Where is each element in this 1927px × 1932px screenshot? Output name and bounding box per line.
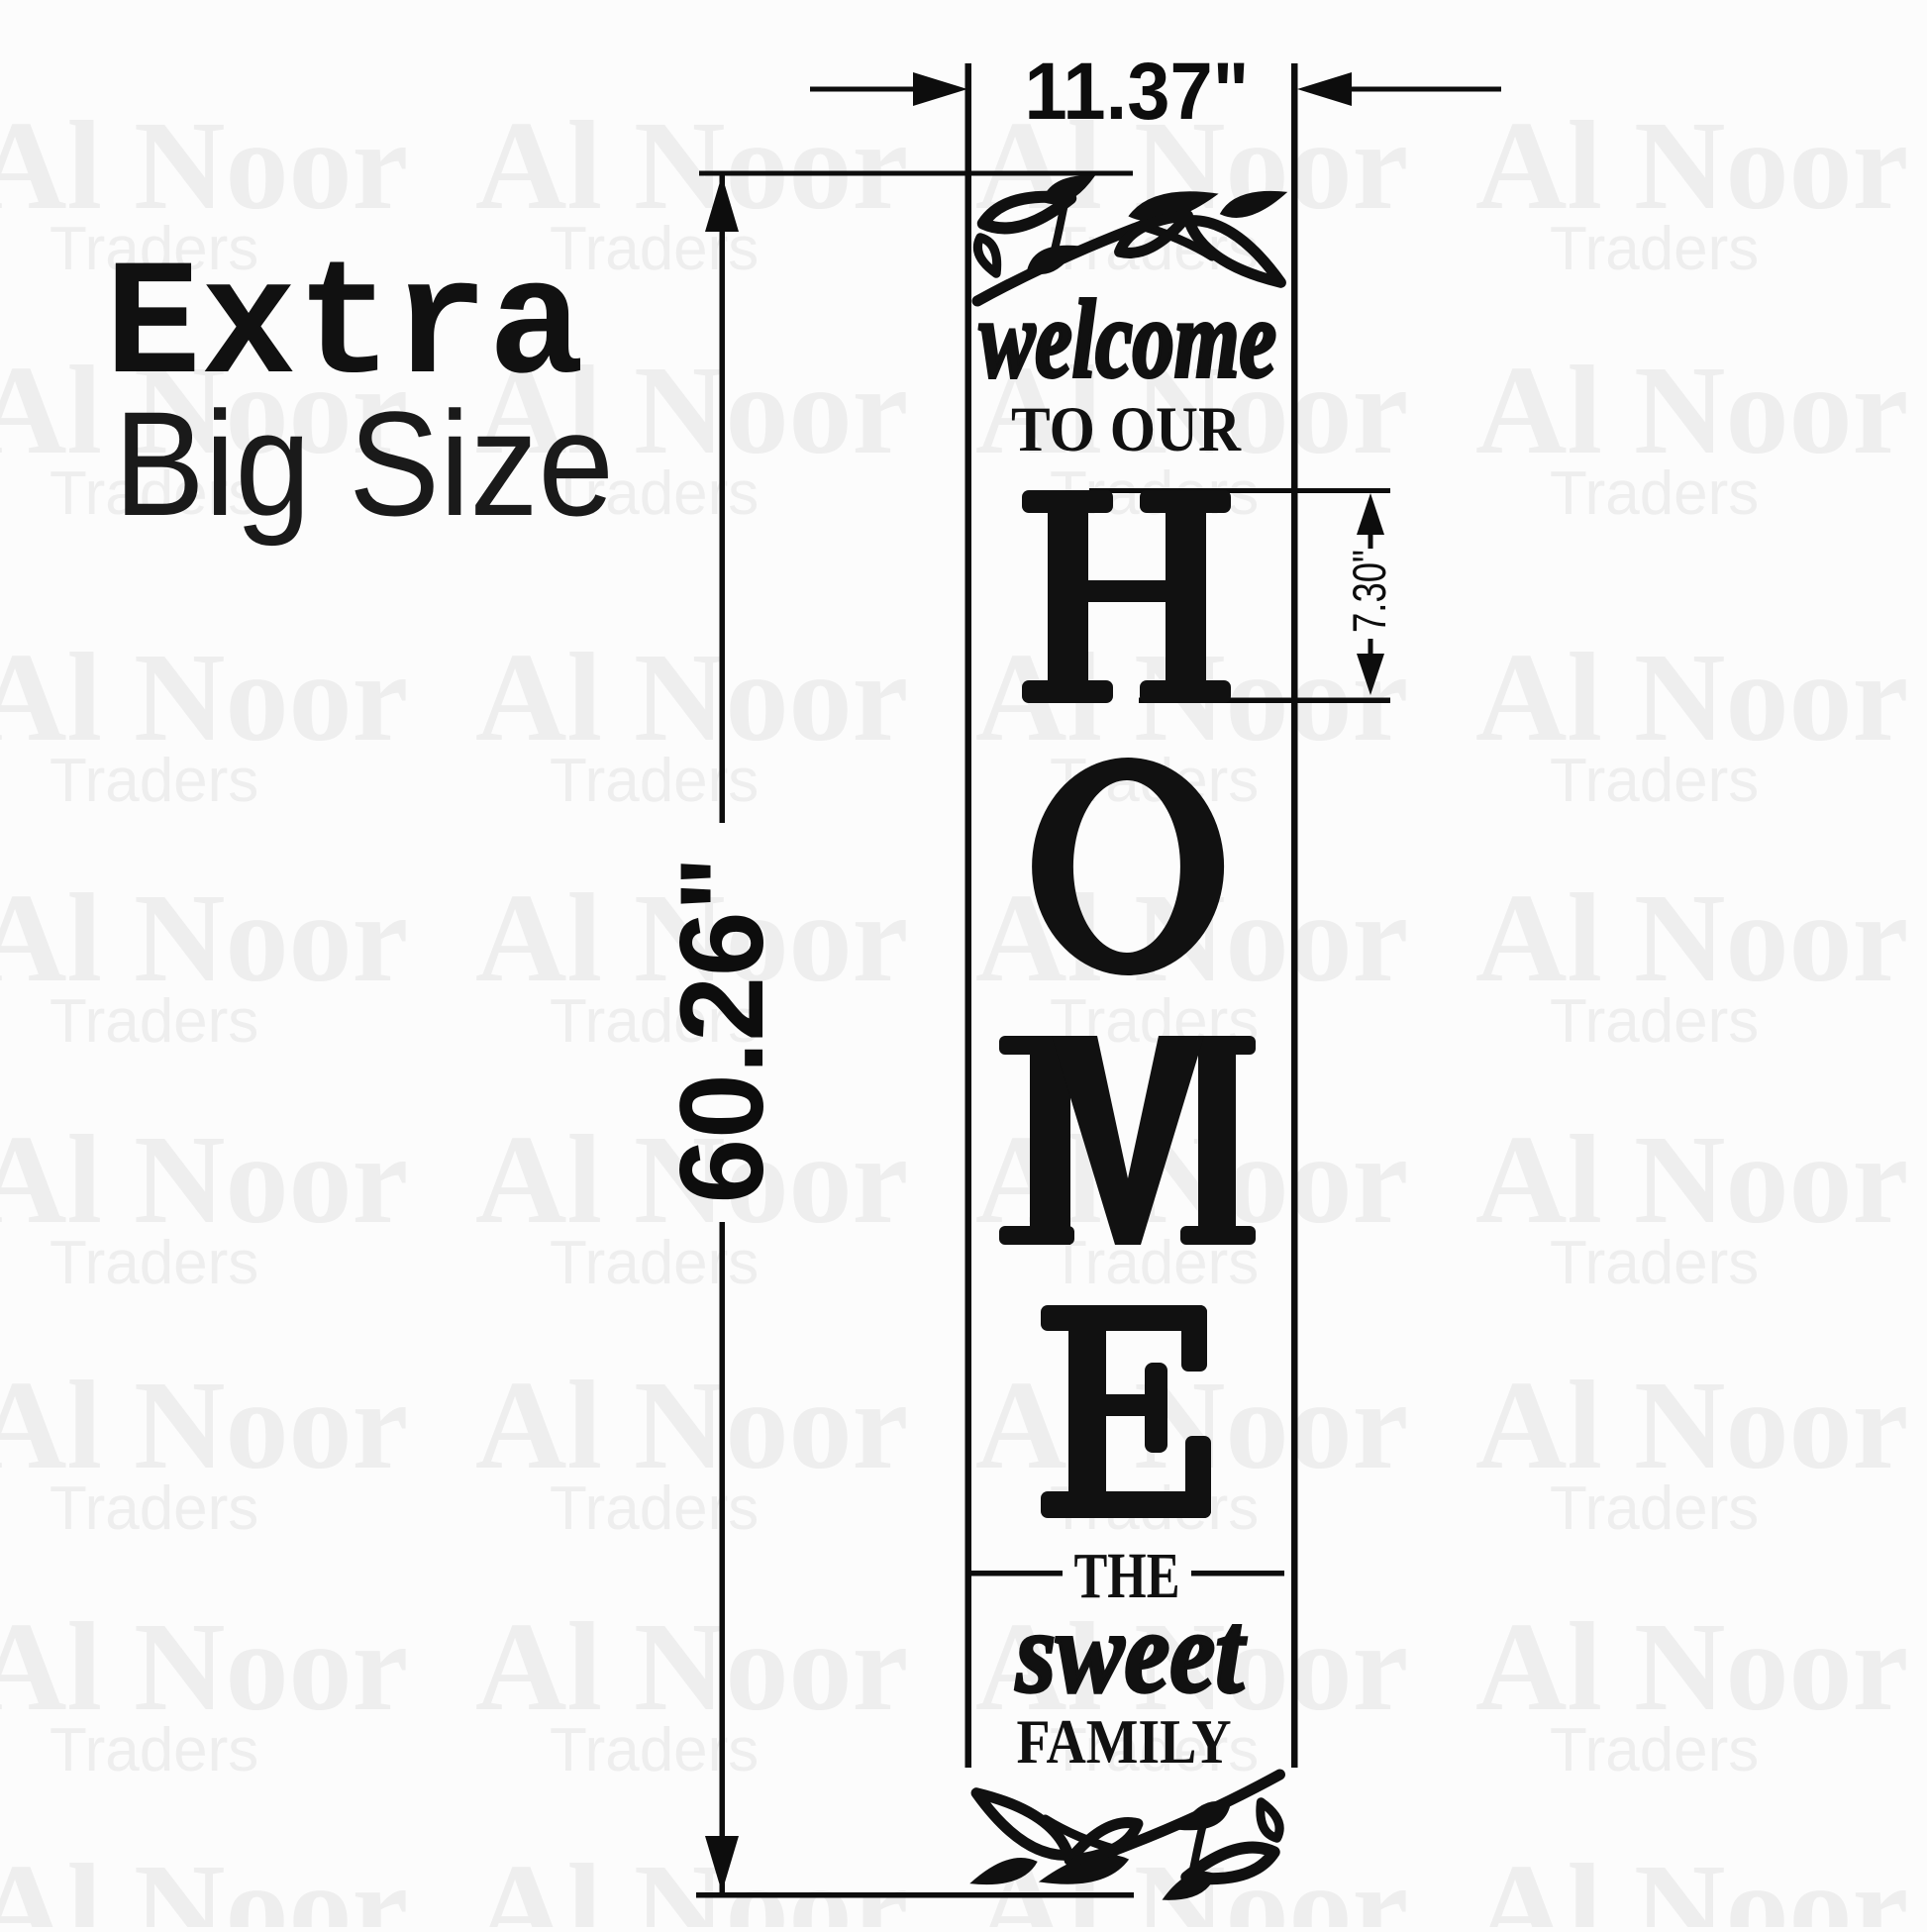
svg-text:Big Size: Big Size bbox=[114, 380, 614, 547]
svg-text:60.26": 60.26" bbox=[656, 857, 788, 1204]
svg-text:FAMILY: FAMILY bbox=[1017, 1707, 1232, 1777]
svg-text:Traders: Traders bbox=[1550, 215, 1759, 283]
svg-text:TO OUR: TO OUR bbox=[1011, 394, 1242, 465]
svg-text:sweet: sweet bbox=[1015, 1587, 1247, 1717]
svg-text:11.37": 11.37" bbox=[1025, 47, 1250, 137]
svg-text:welcome: welcome bbox=[979, 278, 1276, 401]
svg-text:7.30": 7.30" bbox=[1343, 550, 1395, 633]
